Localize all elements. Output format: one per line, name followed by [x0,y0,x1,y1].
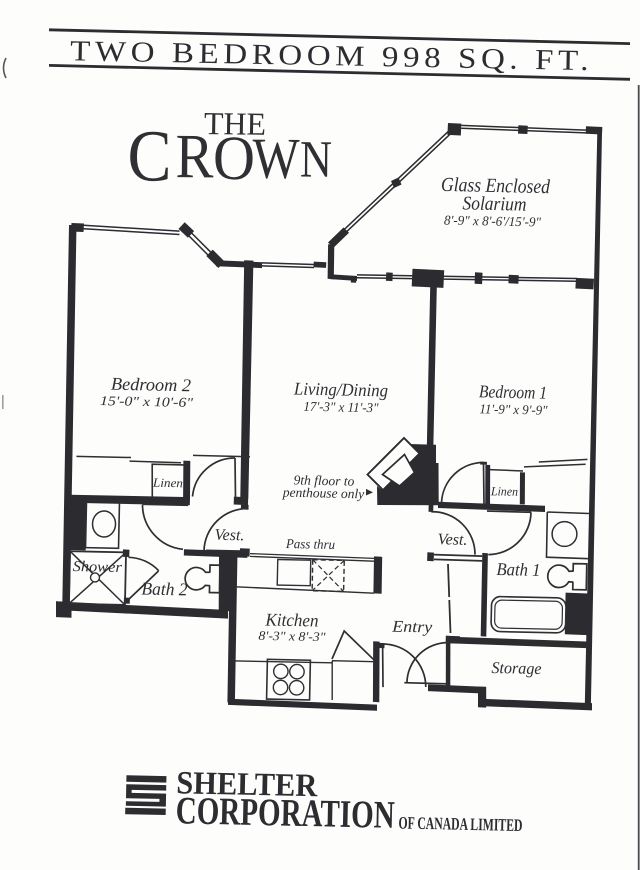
svg-text:Shower: Shower [73,559,123,576]
svg-text:R: R [175,121,213,191]
svg-text:W: W [252,126,300,191]
svg-text:Living/Dining: Living/Dining [293,378,388,400]
svg-text:N: N [300,130,332,188]
svg-text:OF CANADA LIMITED: OF CANADA LIMITED [398,812,522,835]
svg-text:15'-0" x 10'-6": 15'-0" x 10'-6" [100,393,194,410]
svg-text:Vest.: Vest. [214,527,244,545]
svg-text:11'-9" x 9'-9": 11'-9" x 9'-9" [479,401,548,417]
svg-text:C: C [127,115,172,196]
svg-text:Pass thru: Pass thru [285,536,335,552]
svg-text:17'-3" x 11'-3": 17'-3" x 11'-3" [303,399,379,416]
svg-text:8'-3" x 8'-3": 8'-3" x 8'-3" [258,628,326,644]
svg-text:8'-9" x 8'-6'/15'-9": 8'-9" x 8'-6'/15'-9" [444,212,542,229]
svg-text:O: O [213,123,255,193]
svg-text:Bath 2: Bath 2 [141,579,187,600]
svg-text:Storage: Storage [491,658,541,678]
svg-text:CORPORATION: CORPORATION [175,789,395,837]
svg-text:Vest.: Vest. [437,531,467,549]
svg-text:Linen: Linen [152,476,183,491]
svg-text:Bath 1: Bath 1 [496,559,540,580]
svg-text:Bedroom 1: Bedroom 1 [479,381,547,402]
svg-text:Linen: Linen [490,484,518,499]
svg-text:Entry: Entry [391,617,433,637]
svg-text:penthouse only: penthouse only [282,485,365,502]
svg-text:Bedroom 2: Bedroom 2 [111,374,191,396]
